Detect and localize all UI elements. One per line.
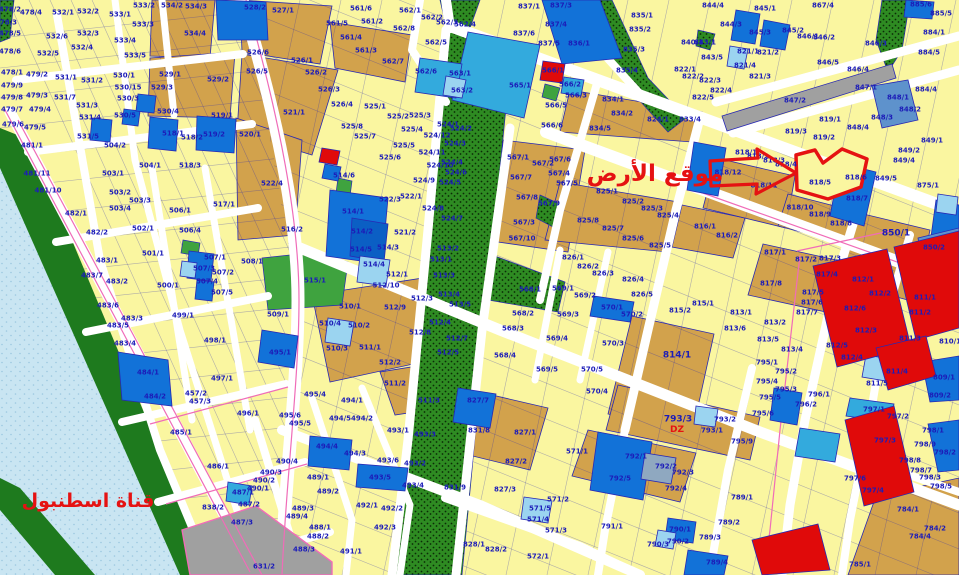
parcel-label: 565/1: [509, 82, 531, 90]
parcel-label: 487/3: [231, 519, 253, 527]
parcel-label: 479/6: [2, 121, 24, 129]
parcel-label: 812/6: [844, 305, 866, 313]
parcel-label: 510/2: [348, 322, 370, 330]
parcel-label: 478/1: [1, 69, 23, 77]
parcel-label: 817/8: [760, 280, 782, 288]
parcel-label: 534/4: [184, 30, 206, 38]
parcel-label: 513/2: [437, 245, 459, 253]
parcel-label: 571/5: [529, 505, 551, 513]
parcel-label: 530/4: [157, 108, 179, 116]
parcel-label: 514/4: [363, 261, 385, 269]
parcel-label: 488/2: [307, 533, 329, 541]
parcel-label: 837/5: [538, 40, 560, 48]
parcel-label: 561/6: [350, 5, 372, 13]
parcel-label: 797/6: [844, 475, 866, 483]
parcel-label: 813/4: [781, 346, 803, 354]
parcel-label: 524/10: [427, 162, 454, 170]
parcel-label: 533/4: [114, 37, 136, 45]
parcel-label: 847/1: [855, 84, 877, 92]
parcel-label: 845/1: [754, 5, 776, 13]
parcel-label: 784/2: [924, 525, 946, 533]
parcel-label: 795/6: [752, 410, 774, 418]
parcel-label: 525/7: [354, 133, 376, 141]
parcel-label: 875/1: [917, 182, 939, 190]
parcel-label: 525/5: [393, 142, 415, 150]
parcel-label: 494/1: [341, 397, 363, 405]
parcel-label: 825/4: [657, 212, 679, 220]
parcel-label: 478/4: [20, 9, 42, 17]
parcel-label: 826/3: [592, 270, 614, 278]
parcel-label: 795/5: [759, 394, 781, 402]
parcel-label: 534/3: [185, 3, 207, 11]
parcel-label: 821/3: [749, 73, 771, 81]
parcel-label: 562/5: [425, 39, 447, 47]
parcel-label: 798/1: [922, 427, 944, 435]
parcel-label: 797/3: [874, 437, 896, 445]
parcel-label: 784/4: [909, 533, 931, 541]
parcel-label: 513/1: [430, 256, 452, 264]
zoning-parcel-blue_dark: [350, 218, 388, 262]
parcel-label: 482/2: [86, 229, 108, 237]
parcel-label: 494/5: [329, 415, 351, 423]
parcel-label: 528/2: [244, 4, 266, 12]
zoning-parcel-cyan_light: [936, 194, 958, 215]
parcel-label: 570/1: [601, 304, 623, 312]
parcel-label: 843/1: [694, 39, 716, 47]
parcel-label: 490/2: [253, 477, 275, 485]
parcel-label: 516/2: [281, 226, 303, 234]
parcel-label: 493/4: [402, 482, 424, 490]
parcel-label: 837/1: [518, 3, 540, 11]
parcel-label: 529/3: [151, 84, 173, 92]
parcel-label: 570/2: [621, 311, 643, 319]
parcel-label: 525/2: [387, 113, 409, 121]
parcel-label: 850/2: [923, 244, 945, 252]
parcel-label: 489/4: [286, 513, 308, 521]
parcel-label: 495/6: [279, 412, 301, 420]
parcel-label: 818/5: [809, 179, 831, 187]
parcel-label: 503/4: [109, 205, 131, 213]
parcel-label: 524/9: [413, 177, 435, 185]
parcel-label: 479/5: [24, 124, 46, 132]
parcel-label: 813/1: [730, 309, 752, 317]
parcel-label: 512/5: [437, 349, 459, 357]
parcel-label: 884/1: [923, 29, 945, 37]
parcel-label: 818/9: [809, 211, 831, 219]
canal-name-label: قناة اسطنبول: [22, 490, 155, 512]
parcel-label: 784/1: [897, 506, 919, 514]
parcel-label: 811/3: [899, 335, 921, 343]
parcel-label: 514/1: [342, 208, 364, 216]
parcel-label: 493/6: [377, 457, 399, 465]
parcel-label: 478/6: [0, 48, 21, 56]
parcel-label: 571/2: [547, 496, 569, 504]
parcel-label: 479/9: [1, 82, 23, 90]
parcel-label: 796/1: [808, 391, 830, 399]
parcel-label: 571/4: [527, 516, 549, 524]
parcel-label: 789/3: [699, 534, 721, 542]
parcel-label: 493/5: [369, 474, 391, 482]
parcel-label: 835/1: [631, 12, 653, 20]
parcel-label: 526/4: [331, 101, 353, 109]
parcel-label: 500/1: [157, 282, 179, 290]
parcel-label: 532/2: [77, 8, 99, 16]
parcel-label: 495/4: [304, 391, 326, 399]
parcel-label: 487/2: [238, 501, 260, 509]
parcel-label: 532/6: [46, 33, 68, 41]
parcel-label: 791/1: [601, 523, 623, 531]
parcel-label: 835/3: [623, 46, 645, 54]
parcel-label: 846/4: [847, 66, 869, 74]
parcel-label: 510/3: [326, 345, 348, 353]
parcel-label: 519/2: [203, 131, 225, 139]
parcel-label: 848/4: [847, 124, 869, 132]
parcel-label: 817/2: [795, 256, 817, 264]
parcel-label: 497/1: [211, 375, 233, 383]
parcel-label: 811/5: [866, 380, 888, 388]
parcel-label: 827/7: [467, 397, 489, 405]
parcel-label: 885/6: [910, 1, 932, 9]
parcel-label: 817/6: [801, 299, 823, 307]
parcel-label: 571/3: [545, 527, 567, 535]
parcel-label: 810/1: [939, 338, 959, 346]
parcel-label: 822/3: [699, 77, 721, 85]
parcel-label: 567/7: [510, 174, 532, 182]
parcel-label: 519/1: [211, 112, 233, 120]
parcel-label: 844/4: [702, 2, 724, 10]
parcel-label: 503/3: [129, 197, 151, 205]
parcel-label: 812/2: [869, 290, 891, 298]
parcel-label: 481/10: [35, 187, 62, 195]
parcel-label: 819/1: [819, 116, 841, 124]
parcel-label: 846/3: [865, 40, 887, 48]
parcel-label: 789/1: [731, 494, 753, 502]
parcel-label: 514/6: [333, 172, 355, 180]
parcel-label: 510/1: [339, 303, 361, 311]
parcel-label: 479/2: [26, 71, 48, 79]
parcel-label: 517/1: [213, 201, 235, 209]
parcel-label: 798/8: [899, 457, 921, 465]
parcel-label: 826/1: [562, 254, 584, 262]
parcel-label: 507/4: [196, 278, 218, 286]
parcel-label: 479/8: [1, 94, 23, 102]
parcel-label: 532/5: [37, 50, 59, 58]
site-location-label: موقع الأرض: [587, 158, 724, 187]
parcel-label: 572/1: [527, 553, 549, 561]
parcel-label: 491/1: [340, 548, 362, 556]
parcel-label: 493/1: [387, 427, 409, 435]
parcel-label: 502/1: [132, 225, 154, 233]
parcel-label: 521/2: [394, 229, 416, 237]
parcel-label: 522/4: [261, 180, 283, 188]
parcel-label: 566/3: [565, 92, 587, 100]
parcel-label: 483/4: [114, 340, 136, 348]
parcel-label: 790/1: [669, 526, 691, 534]
parcel-label: 885/5: [930, 10, 952, 18]
parcel-label: 833/4: [679, 116, 701, 124]
parcel-label: 520/1: [239, 131, 261, 139]
parcel-label: 526/2: [305, 69, 327, 77]
parcel-label: 789/4: [706, 559, 728, 567]
parcel-label: 790/3: [647, 541, 669, 549]
parcel-label: 562/7: [382, 58, 404, 66]
parcel-label: 838/2: [202, 504, 224, 512]
parcel-label: 849/5: [875, 175, 897, 183]
parcel-label: 821/4: [734, 62, 756, 70]
parcel-label: 489/3: [292, 505, 314, 513]
parcel-label: 817/7: [796, 309, 818, 317]
parcel-label: 562/8: [393, 25, 415, 33]
parcel-label: 561/3: [355, 47, 377, 55]
parcel-label: 817/4: [816, 271, 838, 279]
parcel-label: 835/4: [616, 67, 638, 75]
parcel-label: 533/2: [133, 2, 155, 10]
parcel-label: 792/3: [672, 469, 694, 477]
parcel-label: 457/3: [189, 398, 211, 406]
parcel-label: 503/1: [102, 170, 124, 178]
parcel-label: 492/2: [381, 505, 403, 513]
parcel-label: 849/2: [898, 147, 920, 155]
parcel-label: 530/1: [113, 72, 135, 80]
parcel-label: 793/3: [664, 415, 692, 425]
parcel-label: 484/2: [144, 393, 166, 401]
parcel-label: 814/1: [663, 351, 691, 361]
parcel-label: 481/11: [24, 170, 51, 178]
parcel-label: 822/5: [692, 94, 714, 102]
parcel-label: 813/5: [757, 336, 779, 344]
parcel-label: 479/3: [26, 92, 48, 100]
parcel-label: 486/1: [207, 463, 229, 471]
parcel-label: 511/3: [418, 397, 440, 405]
parcel-label: 488/1: [309, 524, 331, 532]
parcel-label: 509/1: [267, 311, 289, 319]
parcel-label: 821/2: [757, 49, 779, 57]
parcel-label: 809/2: [929, 392, 951, 400]
parcel-label: 495/5: [289, 420, 311, 428]
parcel-label: 493/3: [414, 431, 436, 439]
parcel-label: 569/3: [557, 311, 579, 319]
parcel-label: 849/1: [921, 137, 943, 145]
parcel-label: 792/1: [625, 453, 647, 461]
parcel-label: 561/4: [340, 34, 362, 42]
parcel-label: 819/3: [785, 128, 807, 136]
parcel-label: 490/1: [247, 485, 269, 493]
parcel-label: 498/1: [204, 337, 226, 345]
parcel-label: 826/5: [631, 291, 653, 299]
parcel-label: 811/2: [909, 309, 931, 317]
parcel-label: 797/4: [862, 487, 884, 495]
parcel-label: 513/5: [449, 301, 471, 309]
parcel-label: 531/1: [55, 74, 77, 82]
parcel-label: 525/3: [409, 112, 431, 120]
parcel-label: 813/2: [764, 319, 786, 327]
parcel-label: 817/1: [764, 249, 786, 257]
parcel-label: 494/2: [351, 415, 373, 423]
parcel-label: 490/4: [276, 458, 298, 466]
parcel-label: 524/12: [424, 132, 451, 140]
parcel-label: 525/8: [341, 123, 363, 131]
parcel-label: 850/1: [882, 229, 910, 239]
parcel-label: 567/6: [549, 156, 571, 164]
parcel-label: 818/7: [846, 195, 868, 203]
parcel-label: 514/2: [351, 228, 373, 236]
parcel-label: 510/4: [319, 320, 341, 328]
parcel-label: 530/5: [114, 112, 136, 120]
parcel-label: 848/3: [871, 114, 893, 122]
parcel-label: 568/2: [512, 310, 534, 318]
parcel-label: 506/1: [169, 207, 191, 215]
parcel-label: 568/1: [519, 286, 541, 294]
parcel-label: 789/2: [718, 519, 740, 527]
parcel-label: 827/3: [494, 486, 516, 494]
parcel-label: 816/2: [716, 232, 738, 240]
parcel-label: 568/4: [494, 352, 516, 360]
parcel-label: 483/1: [96, 257, 118, 265]
parcel-label: 566/6: [541, 122, 563, 130]
parcel-label: 524/7: [441, 215, 463, 223]
parcel-label: 506/4: [179, 227, 201, 235]
parcel-label: 884/4: [915, 86, 937, 94]
parcel-label: 569/4: [546, 335, 568, 343]
parcel-label: 504/2: [104, 142, 126, 150]
parcel-label: 526/6: [247, 49, 269, 57]
parcel-label: 797/2: [887, 413, 909, 421]
parcel-label: 567/4: [548, 170, 570, 178]
parcel-label: 525/4: [401, 126, 423, 134]
parcel-label: 798/2: [934, 449, 956, 457]
parcel-label: 571/1: [566, 448, 588, 456]
parcel-label: 815/1: [692, 300, 714, 308]
parcel-label: 524/2: [450, 125, 472, 133]
parcel-label: 479/7: [1, 106, 23, 114]
parcel-label: 812/4: [841, 354, 863, 362]
parcel-label: 496/1: [237, 410, 259, 418]
parcel-label: 507/2: [212, 269, 234, 277]
parcel-label: 798/9: [914, 441, 936, 449]
parcel-label: 485/1: [170, 429, 192, 437]
parcel-label: 524/3: [444, 140, 466, 148]
parcel-label: 795/1: [756, 359, 778, 367]
parcel-label: 797/1: [863, 406, 885, 414]
parcel-label: 514/3: [377, 244, 399, 252]
parcel-label: 512/8: [409, 329, 431, 337]
parcel-label: 533/1: [109, 11, 131, 19]
parcel-label: 513/4: [438, 291, 460, 299]
parcel-label: 817/3: [819, 255, 841, 263]
parcel-label: 566/5: [545, 102, 567, 110]
map-canvas[interactable]: 478/2478/4532/1532/2533/1533/2533/3478/3…: [0, 0, 959, 575]
parcel-label: 524/11: [419, 149, 446, 157]
parcel-label: 507/5: [211, 289, 233, 297]
parcel-label: 511/1: [359, 344, 381, 352]
parcel-label: 567/10: [509, 235, 536, 243]
parcel-label: 825/8: [577, 217, 599, 225]
parcel-label: 828/1: [463, 541, 485, 549]
parcel-label: 570/3: [602, 340, 624, 348]
parcel-label: 532/4: [71, 44, 93, 52]
parcel-label: 501/1: [142, 250, 164, 258]
parcel-label: 836/1: [568, 40, 590, 48]
parcel-label: 569/1: [552, 285, 574, 293]
parcel-label: 835/2: [629, 26, 651, 34]
parcel-label: 522/1: [400, 193, 422, 201]
parcel-label: 818/8: [830, 220, 852, 228]
parcel-label: 561/2: [361, 18, 383, 26]
parcel-label: 483/6: [97, 302, 119, 310]
parcel-label: 847/2: [784, 97, 806, 105]
parcel-label: 569/2: [574, 292, 596, 300]
parcel-label: 825/7: [602, 225, 624, 233]
parcel-label: 567/9: [538, 200, 560, 208]
parcel-label: 512/2: [379, 359, 401, 367]
parcel-label: 798/5: [930, 483, 952, 491]
parcel-label: 843/5: [701, 54, 723, 62]
parcel-label: 566/1: [542, 67, 564, 75]
parcel-label: 508/1: [241, 258, 263, 266]
zoning-parcel-cyan: [795, 428, 840, 462]
parcel-label: 493/2: [404, 460, 426, 468]
parcel-label: 524/5: [439, 179, 461, 187]
parcel-label: 844/3: [720, 21, 742, 29]
parcel-label: 812/3: [855, 327, 877, 335]
parcel-label: 867/4: [812, 2, 834, 10]
parcel-label: 534/2: [161, 2, 183, 10]
parcel-label: 567/3: [513, 219, 535, 227]
parcel-label: 821/1: [737, 48, 759, 56]
parcel-label: 811/1: [914, 294, 936, 302]
parcel-label: 846/5: [817, 59, 839, 67]
parcel-label: 837/6: [513, 30, 535, 38]
parcel-label: 566/2: [559, 81, 581, 89]
parcel-label: 824/1: [647, 116, 669, 124]
parcel-label: 790/2: [667, 538, 689, 546]
parcel-label: 811/4: [886, 368, 908, 376]
parcel-label: 524/8: [422, 205, 444, 213]
parcel-label: 512/1: [386, 271, 408, 279]
cadastral-map-screenshot: 478/2478/4532/1532/2533/1533/2533/3478/3…: [0, 0, 959, 575]
parcel-label: 525/6: [379, 154, 401, 162]
parcel-label: 793/2: [714, 416, 736, 424]
zoning-block-red: [319, 148, 340, 165]
parcel-label: 795/9: [731, 438, 753, 446]
parcel-label: 531/7: [54, 94, 76, 102]
parcel-label: 531/3: [76, 102, 98, 110]
parcel-label: 795/2: [775, 368, 797, 376]
parcel-label: 837/4: [545, 21, 567, 29]
parcel-label: 813/6: [724, 325, 746, 333]
parcel-label: 524/6: [445, 169, 467, 177]
parcel-label: 495/1: [269, 349, 291, 357]
parcel-label: 514/5: [350, 246, 372, 254]
parcel-label: 817/5: [802, 289, 824, 297]
parcel-label: 825/1: [596, 188, 618, 196]
parcel-label: 834/1: [602, 96, 624, 104]
parcel-label: 494/4: [316, 443, 338, 451]
parcel-label: 482/1: [65, 210, 87, 218]
parcel-label: 831/8: [468, 427, 490, 435]
parcel-label: 848/2: [899, 106, 921, 114]
parcel-label: 489/2: [317, 488, 339, 496]
parcel-label: 457/2: [185, 390, 207, 398]
parcel-label: 525/1: [364, 103, 386, 111]
parcel-label: 532/3: [77, 30, 99, 38]
parcel-label: 815/2: [669, 307, 691, 315]
parcel-label: 845/3: [749, 29, 771, 37]
parcel-label: 533/3: [132, 21, 154, 29]
parcel-label: 526/3: [318, 86, 340, 94]
parcel-label: 518/2: [181, 134, 203, 142]
parcel-label: 828/2: [485, 546, 507, 554]
